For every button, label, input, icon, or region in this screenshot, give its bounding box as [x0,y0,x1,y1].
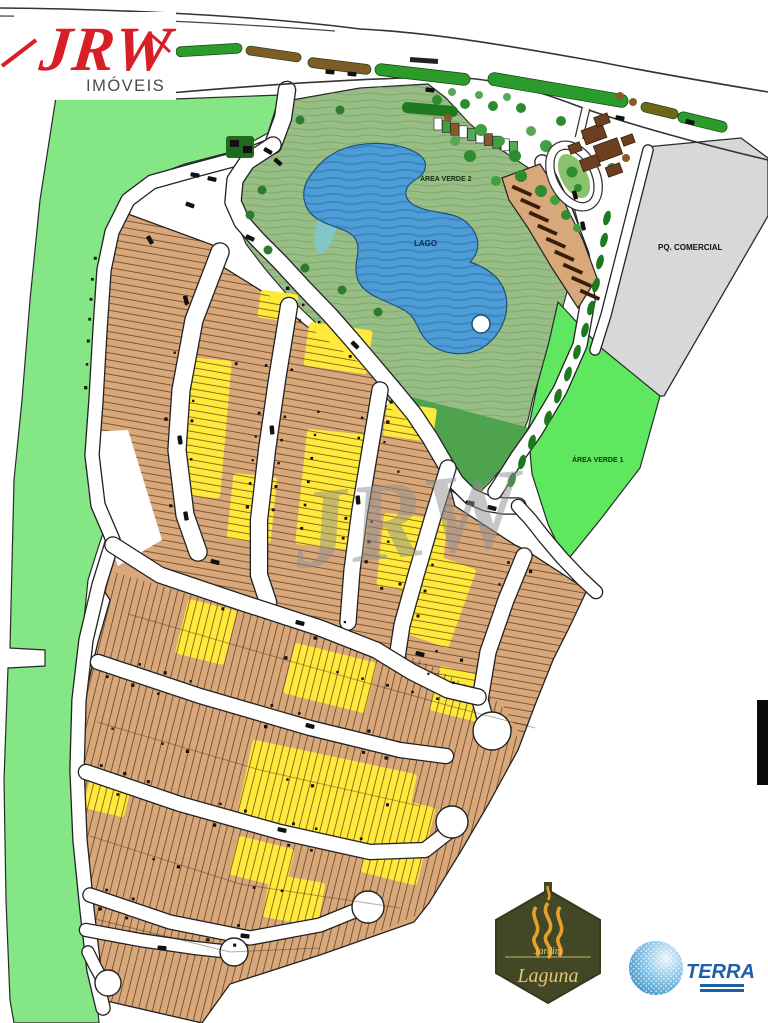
svg-text:TERRA: TERRA [686,961,755,983]
svg-text:PQ. COMERCIAL: PQ. COMERCIAL [658,243,723,252]
svg-text:JRW: JRW [286,445,534,593]
svg-text:Laguna: Laguna [516,965,578,987]
svg-text:ÁREA VERDE 2: ÁREA VERDE 2 [420,174,472,183]
svg-text:IMÓVEIS: IMÓVEIS [86,76,165,95]
svg-text:ÁREA VERDE 1: ÁREA VERDE 1 [572,455,624,464]
svg-text:JRW: JRW [36,14,179,84]
svg-text:LAGO: LAGO [414,239,437,248]
svg-text:Jardim: Jardim [534,946,562,957]
